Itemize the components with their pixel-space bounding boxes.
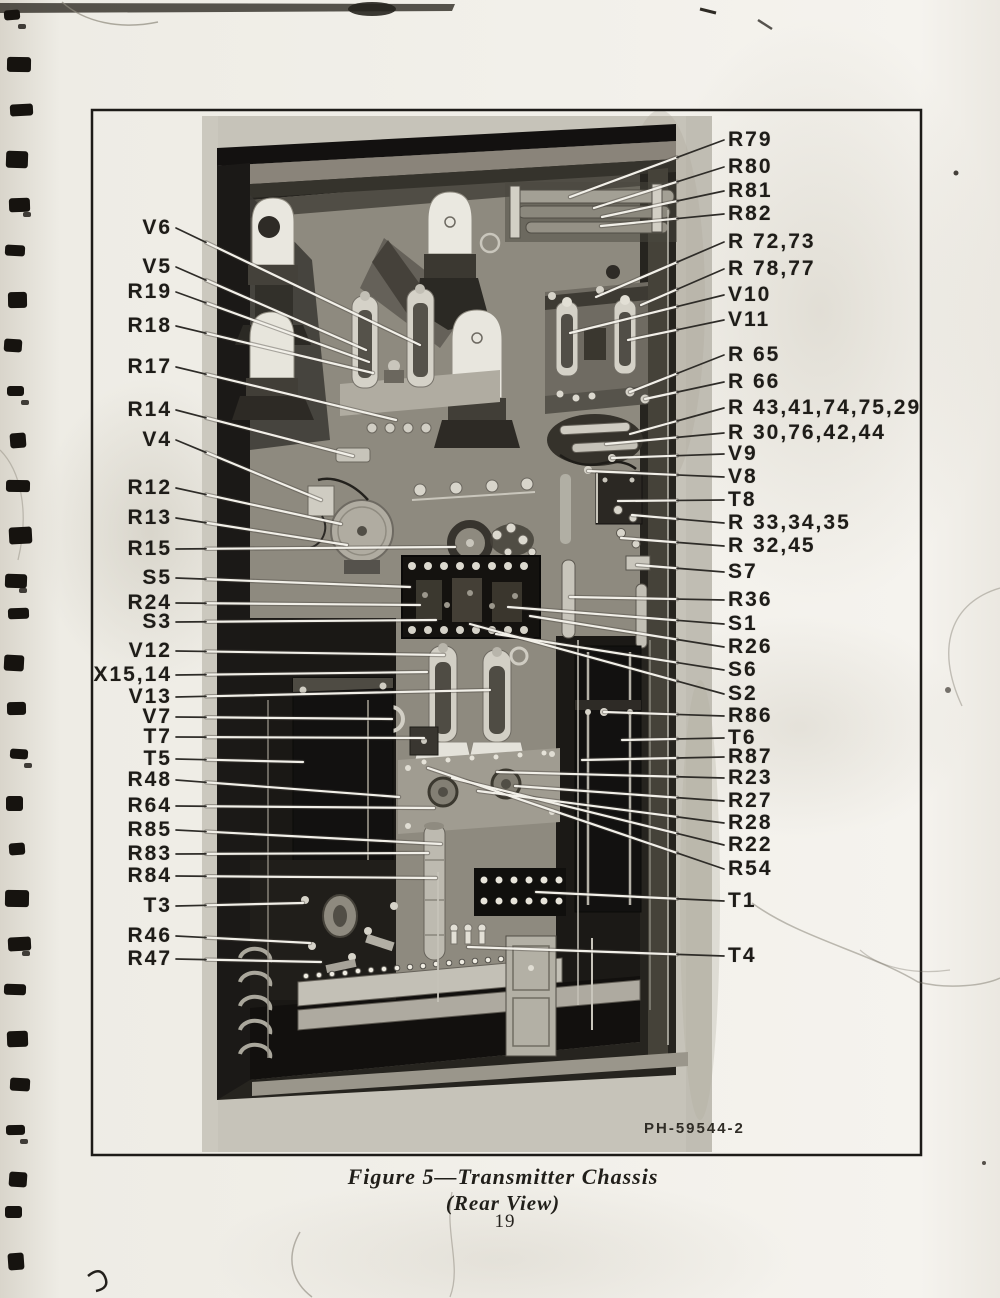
callout-r36: R36 — [728, 588, 773, 612]
callout-r-32-45: R 32,45 — [728, 534, 816, 558]
callout-r-72-73: R 72,73 — [728, 230, 816, 254]
callout-r-65: R 65 — [728, 343, 780, 367]
callout-r82: R82 — [728, 202, 773, 226]
callout-v4: V4 — [142, 428, 172, 452]
callout-r15: R15 — [127, 537, 172, 561]
callout-r48: R48 — [127, 768, 172, 792]
callout-s2: S2 — [728, 682, 758, 706]
callout-v10: V10 — [728, 283, 771, 307]
callout-r14: R14 — [127, 398, 172, 422]
callout-r54: R54 — [728, 857, 773, 881]
photo-id: PH-59544-2 — [644, 1120, 745, 1137]
callout-r23: R23 — [728, 766, 773, 790]
callout-r81: R81 — [728, 179, 773, 203]
callout-v6: V6 — [142, 216, 172, 240]
figure-caption: Figure 5—Transmitter Chassis (Rear View) — [0, 1164, 1000, 1216]
callout-v11: V11 — [728, 308, 770, 332]
callout-r46: R46 — [127, 924, 172, 948]
callout-v9: V9 — [728, 442, 758, 466]
scanned-manual-page: V6V5R19R18R17R14V4R12R13R15S5R24S3V12X15… — [0, 0, 1000, 1298]
callout-r83: R83 — [127, 842, 172, 866]
callout-t1: T1 — [728, 889, 757, 913]
callout-r19: R19 — [127, 280, 172, 304]
callout-r-78-77: R 78,77 — [728, 257, 816, 281]
callout-r28: R28 — [728, 811, 773, 835]
callout-r17: R17 — [127, 355, 172, 379]
callout-r-33-34-35: R 33,34,35 — [728, 511, 851, 535]
callout-r26: R26 — [728, 635, 773, 659]
callout-t4: T4 — [728, 944, 757, 968]
callout-r-66: R 66 — [728, 370, 780, 394]
callout-s5: S5 — [142, 566, 172, 590]
callout-r86: R86 — [728, 704, 773, 728]
callout-v5: V5 — [142, 255, 172, 279]
callout-r47: R47 — [127, 947, 172, 971]
callout-s1: S1 — [728, 612, 758, 636]
callout-r79: R79 — [728, 128, 773, 152]
callout-t3: T3 — [143, 894, 172, 918]
callout-s6: S6 — [728, 658, 758, 682]
callout-t7: T7 — [143, 725, 172, 749]
callout-r84: R84 — [127, 864, 172, 888]
caption-title: Figure 5—Transmitter Chassis — [0, 1164, 1000, 1190]
callout-v8: V8 — [728, 465, 758, 489]
callout-r80: R80 — [728, 155, 773, 179]
callout-r27: R27 — [728, 789, 773, 813]
spiral-binding-marks — [4, 9, 34, 1270]
callout-v12: V12 — [129, 639, 172, 663]
callout-r12: R12 — [127, 476, 172, 500]
callout-r13: R13 — [127, 506, 172, 530]
callout-s7: S7 — [728, 560, 758, 584]
callout-r-43-41-74-75-29: R 43,41,74,75,29 — [728, 396, 921, 420]
callout-r18: R18 — [127, 314, 172, 338]
callout-r85: R85 — [127, 818, 172, 842]
callout-t8: T8 — [728, 488, 757, 512]
callout-x15-14: X15,14 — [93, 663, 172, 687]
photo-print — [202, 110, 720, 1152]
callout-r22: R22 — [728, 833, 773, 857]
page-number: 19 — [0, 1211, 1000, 1233]
callout-r64: R64 — [127, 794, 172, 818]
callout-s3: S3 — [142, 610, 172, 634]
